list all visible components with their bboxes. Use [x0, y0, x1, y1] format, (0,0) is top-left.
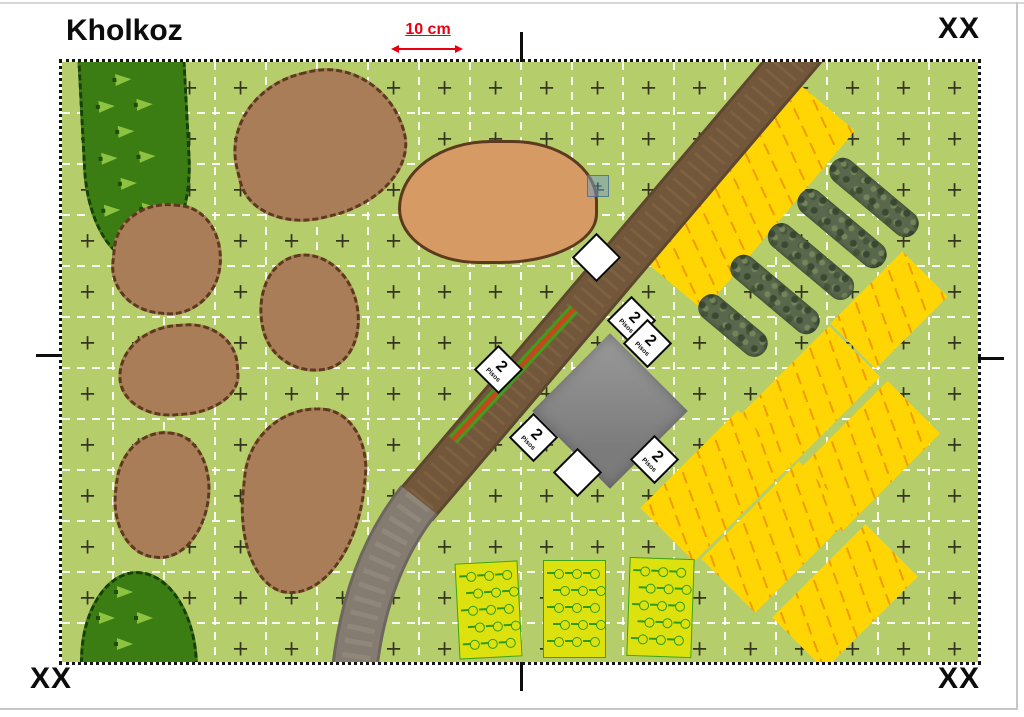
corner-label-bottom-right: XX	[938, 662, 980, 696]
page-edge-right	[1016, 2, 1018, 710]
two-story-building-marker[interactable]: 2Pisos	[630, 435, 679, 484]
center-tick-top	[520, 32, 523, 62]
page-edge-bottom	[0, 708, 1018, 710]
blank-marker[interactable]	[553, 448, 602, 497]
map-canvas: ++++++++++++++++++++++++++++++++++++++++…	[62, 62, 978, 662]
two-story-building-marker[interactable]: 2Pisos	[474, 345, 523, 394]
page-edge-top	[0, 2, 1024, 4]
corner-label-bottom-left: XX	[30, 662, 72, 696]
selection-highlight[interactable]: +	[587, 175, 609, 197]
corner-label-top-right: XX	[938, 12, 980, 46]
blank-marker[interactable]	[572, 233, 621, 282]
scale-label: 10 cm	[388, 21, 468, 39]
objects-layer: 2Pisos2Pisos2Pisos2Pisos2Pisos+	[62, 62, 978, 662]
center-tick-bottom	[520, 662, 523, 691]
document-page: Kholkoz 10 cm XX XX XX +++++++++++++++++…	[0, 0, 1024, 717]
map-title: Kholkoz	[66, 14, 183, 48]
two-story-building-marker[interactable]: 2Pisos	[509, 413, 558, 462]
center-tick-left	[36, 354, 62, 357]
scale-arrow-icon	[398, 48, 456, 50]
center-tick-right	[978, 357, 1004, 360]
